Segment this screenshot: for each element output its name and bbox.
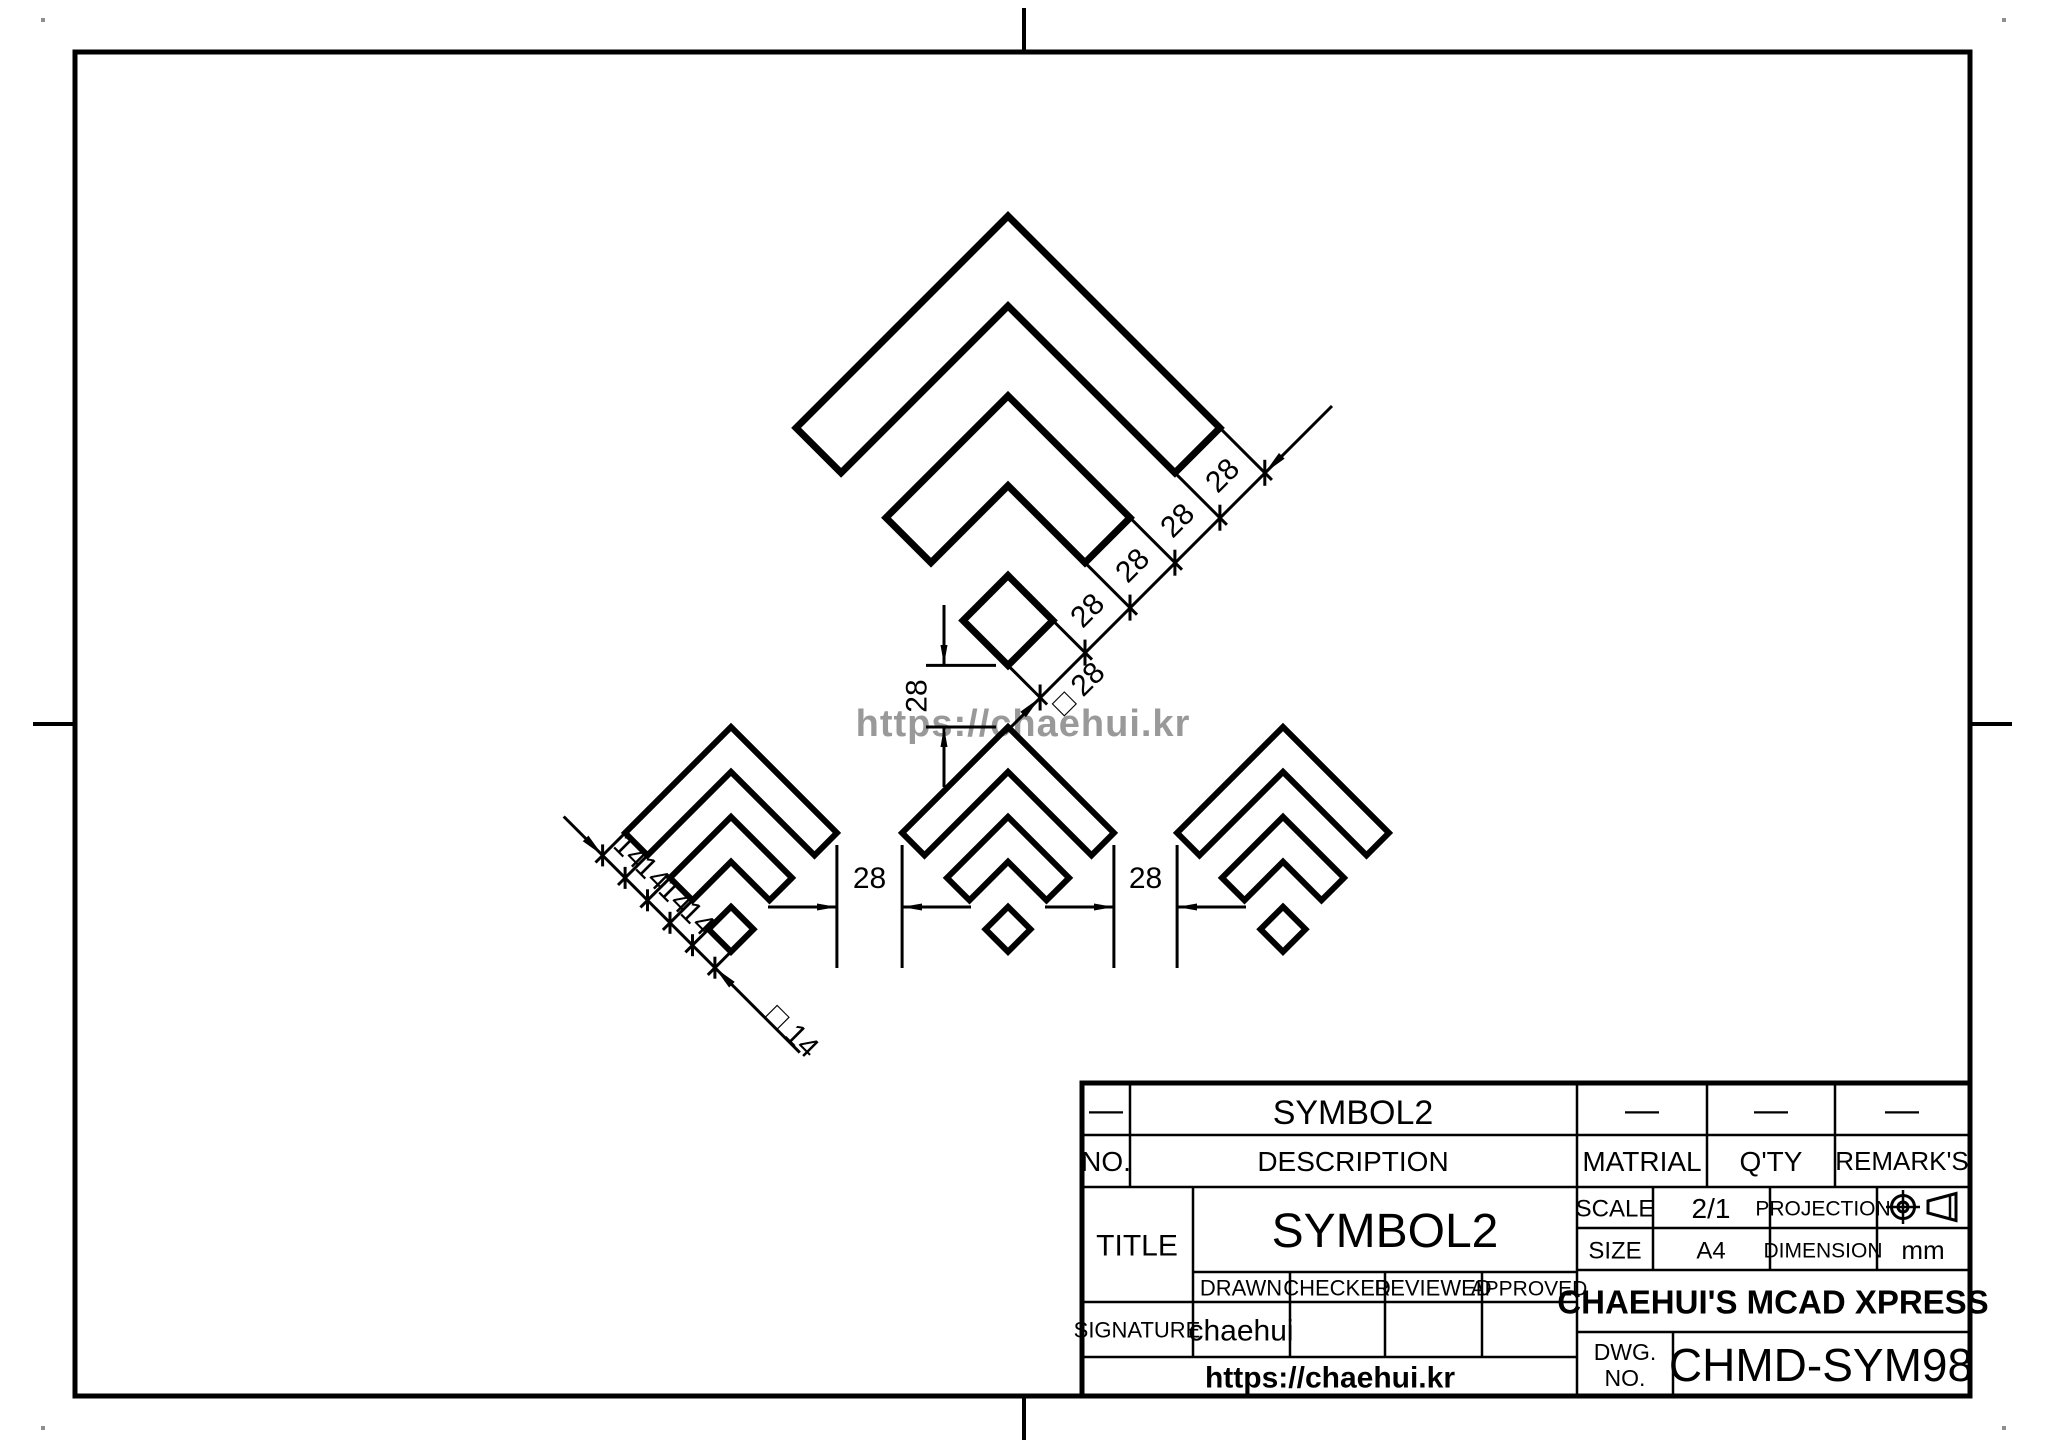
dim-gap-left: 28 — [768, 845, 971, 968]
projection-icon — [1886, 1190, 1956, 1224]
dimension-label: DIMENSION — [1763, 1239, 1882, 1262]
drawing-sheet: https://chaehui.kr — [0, 0, 2048, 1448]
dimension-value: mm — [1901, 1235, 1944, 1265]
no-header: NO. — [1081, 1146, 1131, 1177]
material-header: MATRIAL — [1582, 1146, 1701, 1177]
dim-label-28: 28 — [1064, 587, 1111, 634]
rev-dash: — — [1089, 1091, 1123, 1129]
scale-value: 2/1 — [1692, 1193, 1731, 1224]
title-block: — SYMBOL2 — — — NO. DESCRIPTION MATRIAL … — [1074, 1083, 1989, 1396]
cad-drawing-canvas: https://chaehui.kr — [0, 0, 2048, 1448]
dwg-label-line1: DWG. — [1594, 1339, 1657, 1365]
dwg-number: CHMD-SYM98 — [1669, 1339, 1973, 1391]
rev-qty-dash: — — [1754, 1091, 1788, 1129]
dim-label-vertical-28: 28 — [901, 679, 934, 712]
symbol-small-right — [1177, 727, 1389, 952]
large-chevron-band-1 — [796, 216, 1220, 473]
dim-label-28: 28 — [1199, 452, 1246, 499]
symbol-small-left — [625, 727, 837, 952]
size-value: A4 — [1696, 1237, 1725, 1264]
large-diamond — [963, 576, 1053, 666]
title-label: TITLE — [1096, 1230, 1178, 1263]
company-name: CHAEHUI'S MCAD XPRESS — [1557, 1284, 1988, 1321]
drawn-value: chaehui — [1188, 1315, 1293, 1348]
title-value: SYMBOL2 — [1272, 1205, 1499, 1258]
dim-label-square-14: □ 14 — [759, 999, 825, 1065]
large-chevron-band-2 — [886, 396, 1130, 563]
drawn-header: DRAWN — [1200, 1276, 1282, 1301]
description-header: DESCRIPTION — [1257, 1146, 1448, 1177]
rev-name: SYMBOL2 — [1273, 1094, 1434, 1132]
dim-label-gap-left: 28 — [853, 862, 886, 895]
dim-label-28: 28 — [1109, 542, 1156, 589]
rev-remark-dash: — — [1885, 1091, 1919, 1129]
symbol-small-middle — [902, 727, 1114, 952]
dim-label-gap-right: 28 — [1129, 862, 1162, 895]
dim-vertical-28: 28 — [901, 605, 997, 787]
dwg-label-line2: NO. — [1605, 1365, 1646, 1391]
dim-chain-large: 28 28 28 28 □ 28 — [1005, 406, 1332, 733]
qty-header: Q'TY — [1740, 1146, 1803, 1177]
signature-label: SIGNATURE — [1074, 1318, 1201, 1343]
url-text: https://chaehui.kr — [1205, 1362, 1455, 1395]
dim-gap-right: 28 — [1045, 845, 1246, 968]
scale-label: SCALE — [1576, 1195, 1655, 1222]
rev-material-dash: — — [1625, 1091, 1659, 1129]
size-label: SIZE — [1588, 1237, 1641, 1264]
dim-label-28: 28 — [1154, 497, 1201, 544]
remarks-header: REMARK'S — [1835, 1146, 1969, 1176]
symbol-large — [796, 216, 1220, 665]
projection-label: PROJECTION — [1755, 1197, 1890, 1220]
